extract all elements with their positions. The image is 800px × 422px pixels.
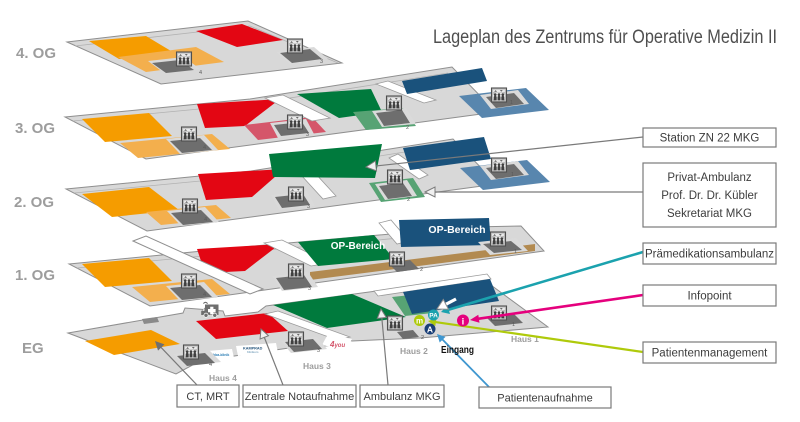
svg-text:4: 4 (203, 145, 206, 151)
svg-text:Prämedikationsambulanz: Prämedikationsambulanz (645, 249, 774, 261)
svg-text:Haus 3: Haus 3 (303, 361, 331, 371)
svg-text:hba-klinik: hba-klinik (213, 353, 229, 357)
svg-text:Klinikum: Klinikum (247, 350, 259, 354)
svg-text:2. OG: 2. OG (14, 194, 54, 211)
svg-text:Eingang: Eingang (441, 344, 474, 356)
svg-text:1: 1 (510, 100, 513, 106)
svg-text:2: 2 (406, 125, 409, 131)
svg-text:Haus 2: Haus 2 (400, 346, 428, 356)
svg-text:4. OG: 4. OG (16, 45, 56, 62)
svg-text:1: 1 (514, 249, 517, 255)
svg-text:Zentrale Notaufnahme: Zentrale Notaufnahme (245, 391, 354, 403)
svg-text:OP-Bereich: OP-Bereich (331, 241, 385, 252)
svg-text:EG: EG (22, 340, 44, 357)
svg-text:Patientenmanagement: Patientenmanagement (652, 348, 769, 360)
svg-text:Haus 4: Haus 4 (209, 373, 237, 383)
svg-text:1: 1 (512, 322, 515, 328)
svg-text:4: 4 (203, 292, 206, 298)
svg-text:CT, MRT: CT, MRT (186, 391, 229, 403)
svg-text:2: 2 (420, 267, 423, 273)
svg-text:Ambulanz MKG: Ambulanz MKG (363, 391, 440, 403)
svg-text:m: m (416, 317, 423, 326)
svg-text:3: 3 (308, 286, 311, 292)
svg-text:PA: PA (429, 313, 438, 320)
svg-text:Prof. Dr. Dr. Kübler: Prof. Dr. Dr. Kübler (661, 190, 758, 202)
svg-text:Infopoint: Infopoint (687, 291, 732, 303)
svg-text:2: 2 (407, 197, 410, 203)
svg-text:Sekretariat MKG: Sekretariat MKG (667, 208, 752, 220)
svg-text:Patientenaufnahme: Patientenaufnahme (497, 392, 592, 404)
svg-text:A: A (427, 325, 433, 335)
svg-text:3: 3 (320, 59, 323, 65)
svg-text:Station ZN 22 MKG: Station ZN 22 MKG (660, 133, 760, 145)
svg-text:4: 4 (204, 217, 207, 223)
svg-text:i: i (462, 317, 465, 328)
svg-text:2: 2 (421, 335, 424, 341)
svg-text:3: 3 (306, 132, 309, 138)
svg-text:Privat-Ambulanz: Privat-Ambulanz (667, 172, 752, 184)
svg-text:4: 4 (199, 70, 202, 76)
svg-text:Lageplan des Zentrums für Oper: Lageplan des Zentrums für Operative Medi… (433, 27, 777, 48)
svg-text:OP-Bereich: OP-Bereich (428, 224, 485, 236)
svg-text:1. OG: 1. OG (15, 267, 55, 284)
svg-text:3: 3 (317, 348, 320, 354)
svg-text:3: 3 (307, 204, 310, 210)
svg-text:1: 1 (511, 172, 514, 178)
svg-text:4: 4 (209, 362, 212, 368)
svg-text:3. OG: 3. OG (15, 120, 55, 137)
